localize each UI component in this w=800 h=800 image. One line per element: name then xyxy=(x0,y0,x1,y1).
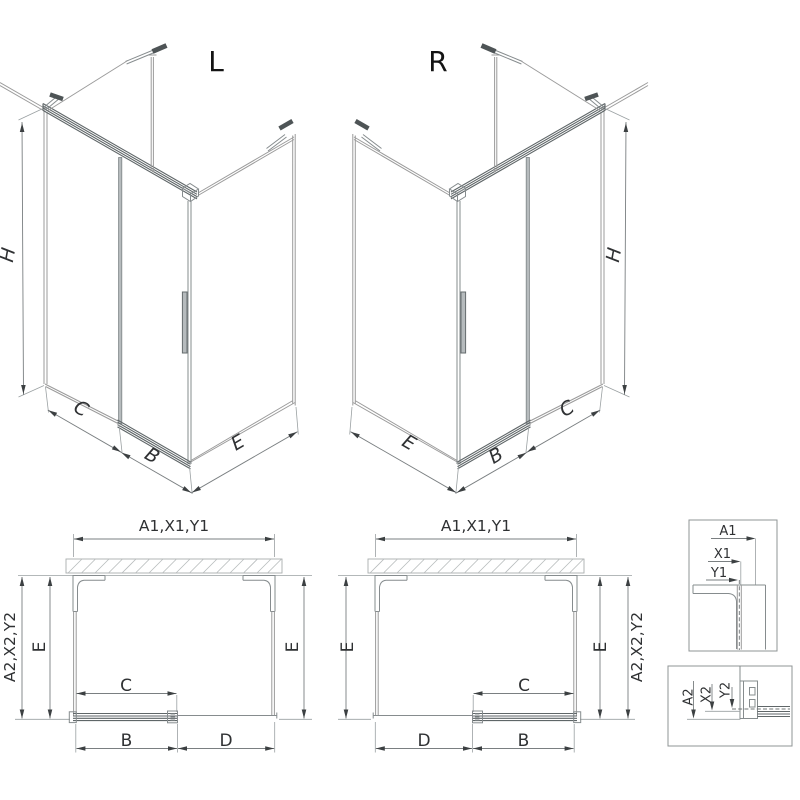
plan-right-e-left: E xyxy=(338,642,358,653)
plan-right-c: C xyxy=(518,676,530,696)
plan-left-c: C xyxy=(120,676,132,696)
view-title-left: L xyxy=(208,45,224,78)
detail-top-x1: X1 xyxy=(714,547,731,562)
iso-view-left: L H C B E xyxy=(0,45,298,495)
plan-right-top-dim: A1,X1,Y1 xyxy=(441,517,511,535)
plan-right-e-right: E xyxy=(591,642,611,653)
dim-label-e-left: E xyxy=(227,430,248,455)
iso-view-right: R H E B C xyxy=(350,45,648,495)
plan-left-top-dim: A1,X1,Y1 xyxy=(139,517,209,535)
plan-left-b: B xyxy=(121,731,133,751)
dim-label-height-left: H xyxy=(0,246,20,264)
view-title-right: R xyxy=(428,45,447,78)
plan-left-e-left: E xyxy=(30,642,50,653)
dim-label-height-right: H xyxy=(602,246,626,264)
plan-right-outer-dim: A2,X2,Y2 xyxy=(628,612,646,682)
detail-top-y1: Y1 xyxy=(710,566,727,581)
plan-view-right: A1,X1,Y1 E E A2,X2,Y2 C D B xyxy=(338,517,646,753)
plan-view-left: A1,X1,Y1 A2,X2,Y2 E E C B D xyxy=(1,517,312,753)
dim-label-e-right: E xyxy=(398,430,419,455)
detail-bottom-y2: Y2 xyxy=(719,682,734,699)
dim-label-c-right: C xyxy=(556,396,579,422)
plan-right-b: B xyxy=(518,731,530,751)
dim-label-b-left: B xyxy=(141,443,163,469)
detail-view-bottom: A2 X2 Y2 xyxy=(668,666,792,746)
dim-label-b-right: B xyxy=(485,443,507,469)
plan-left-e-right: E xyxy=(283,642,303,653)
plan-left-d: D xyxy=(219,731,232,751)
plan-left-outer-dim: A2,X2,Y2 xyxy=(1,612,19,682)
drawing-sheet: L H C B E R H E B C A1,X1,Y1 A2,X2,Y2 E … xyxy=(0,0,800,800)
shower-enclosure-technical-drawing: L H C B E R H E B C A1,X1,Y1 A2,X2,Y2 E … xyxy=(0,0,800,800)
detail-view-top: A1 X1 Y1 xyxy=(689,520,777,651)
plan-right-d: D xyxy=(417,731,430,751)
detail-top-a1: A1 xyxy=(719,524,736,539)
detail-bottom-x2: X2 xyxy=(700,686,715,703)
detail-bottom-a2: A2 xyxy=(682,688,697,705)
